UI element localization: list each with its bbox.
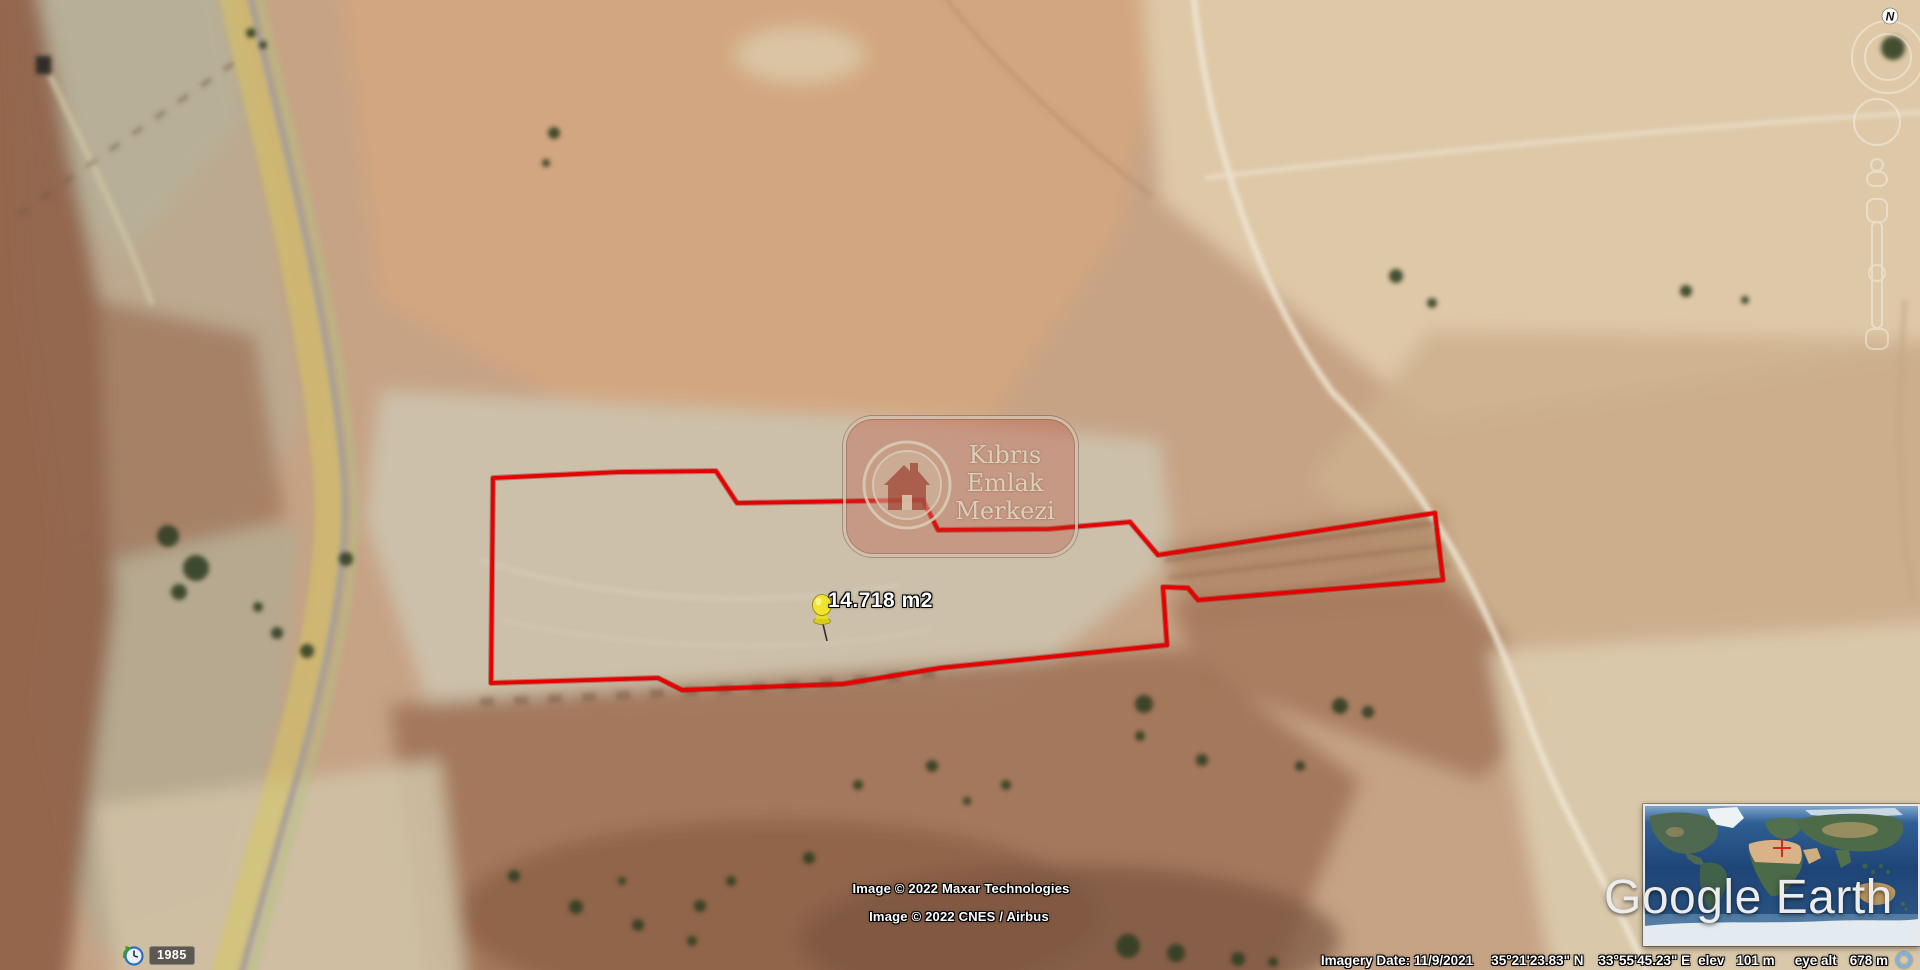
eye-alt-label: eye alt — [1795, 953, 1837, 968]
zoom-slider[interactable] — [1872, 222, 1882, 328]
latitude-readout: 35°21'23.83" N — [1491, 953, 1583, 968]
historical-imagery-year[interactable]: 1985 — [149, 946, 195, 965]
look-joystick[interactable] — [1865, 34, 1911, 80]
look-ring[interactable] — [1852, 21, 1920, 93]
placemark-label[interactable]: 14.718 m2 — [828, 589, 933, 613]
elevation-readout: 101 m — [1736, 953, 1774, 968]
watermark-line-3: Merkezi — [941, 497, 1069, 525]
pegman-body[interactable] — [1867, 172, 1887, 186]
watermark-line-2: Emlak — [941, 469, 1069, 497]
agency-watermark: Kıbrıs Emlak Merkezi — [843, 416, 1078, 557]
pegman-control[interactable] — [1871, 159, 1883, 171]
compass-north-label: N — [1886, 10, 1895, 24]
eye-altitude-readout: 678 m — [1850, 953, 1888, 968]
compass-north-button[interactable]: N — [1882, 8, 1898, 24]
watermark-line-1: Kıbrıs — [941, 441, 1069, 469]
google-earth-logo: Google Earth — [1604, 870, 1893, 925]
longitude-readout: 33°55'45.23" E — [1599, 953, 1691, 968]
clock-history-icon[interactable] — [122, 944, 145, 967]
historical-imagery-control[interactable]: 1985 — [122, 944, 195, 967]
move-joystick[interactable] — [1854, 99, 1900, 145]
streaming-indicator-icon — [1896, 952, 1912, 968]
imagery-date: Imagery Date: 11/9/2021 — [1321, 953, 1473, 968]
attribution-maxar: Image © 2022 Maxar Technologies — [751, 881, 1171, 896]
zoom-in-button[interactable] — [1867, 199, 1887, 222]
zoom-out-button[interactable] — [1866, 329, 1888, 349]
navigation-controls[interactable]: N — [1840, 0, 1920, 360]
attribution-cnes: Image © 2022 CNES / Airbus — [749, 909, 1169, 924]
status-bar: Imagery Date: 11/9/2021 35°21'23.83" N 3… — [1321, 952, 1912, 968]
google-earth-viewport[interactable]: Kıbrıs Emlak Merkezi 14.718 m2 N — [0, 0, 1920, 970]
elev-label: elev — [1698, 953, 1724, 968]
